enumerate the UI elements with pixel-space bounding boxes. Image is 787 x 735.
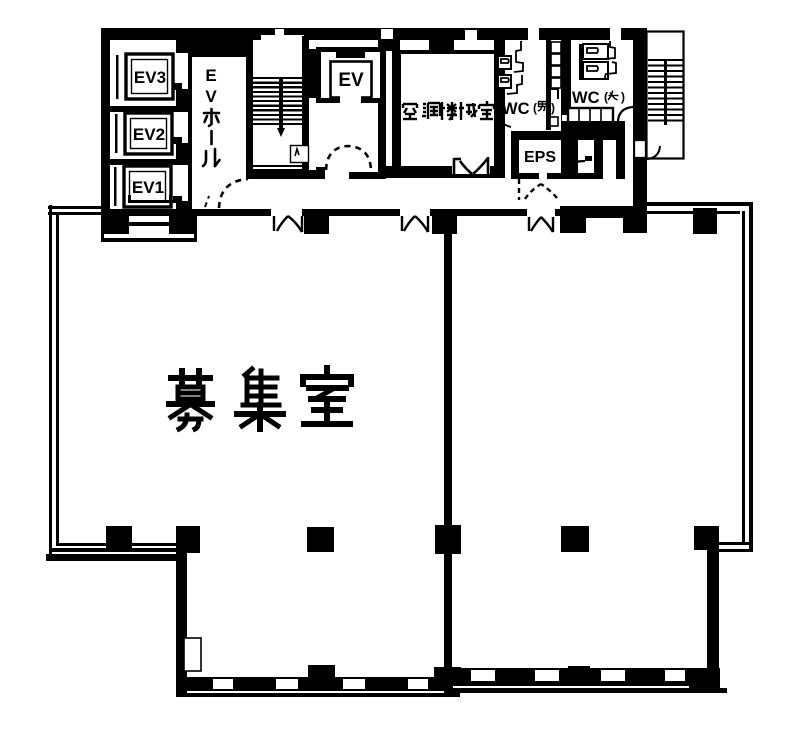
svg-text:(: ( xyxy=(533,101,537,115)
svg-text:WC: WC xyxy=(502,100,530,118)
svg-text:EPS: EPS xyxy=(524,149,556,166)
svg-text:WC: WC xyxy=(572,89,600,107)
svg-text:): ) xyxy=(551,101,555,115)
svg-text:EV: EV xyxy=(338,70,364,91)
svg-text:EV1: EV1 xyxy=(132,178,164,197)
svg-text:E: E xyxy=(205,66,216,85)
svg-text:EV2: EV2 xyxy=(133,125,165,144)
svg-text:EV3: EV3 xyxy=(134,68,166,87)
svg-text:V: V xyxy=(205,87,217,106)
svg-text:): ) xyxy=(621,90,625,104)
svg-text:(: ( xyxy=(604,90,608,104)
